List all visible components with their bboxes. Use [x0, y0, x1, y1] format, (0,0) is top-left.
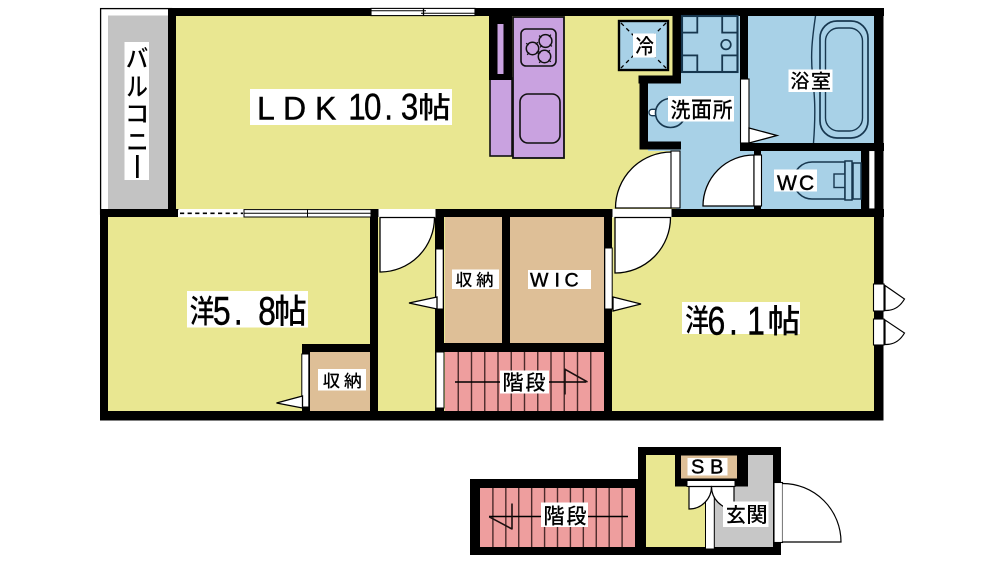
svg-text:6: 6 [708, 298, 726, 343]
svg-text:I: I [555, 270, 560, 292]
svg-text:0: 0 [364, 87, 381, 128]
svg-text:D: D [283, 91, 306, 127]
svg-text:1: 1 [348, 87, 365, 128]
svg-text:B: B [710, 457, 723, 479]
svg-text:.: . [234, 288, 243, 333]
svg-text:.: . [729, 298, 738, 343]
svg-text:1: 1 [747, 298, 765, 343]
svg-text:.: . [384, 87, 393, 128]
svg-text:W: W [777, 172, 797, 195]
svg-text:K: K [315, 91, 336, 127]
svg-text:S: S [691, 457, 704, 479]
svg-text:C: C [565, 270, 579, 292]
svg-text:C: C [799, 172, 814, 195]
svg-text:8: 8 [258, 288, 276, 333]
svg-text:5: 5 [213, 288, 231, 333]
svg-text:W: W [530, 270, 549, 292]
svg-text:3: 3 [401, 87, 418, 128]
svg-text:L: L [257, 91, 275, 127]
